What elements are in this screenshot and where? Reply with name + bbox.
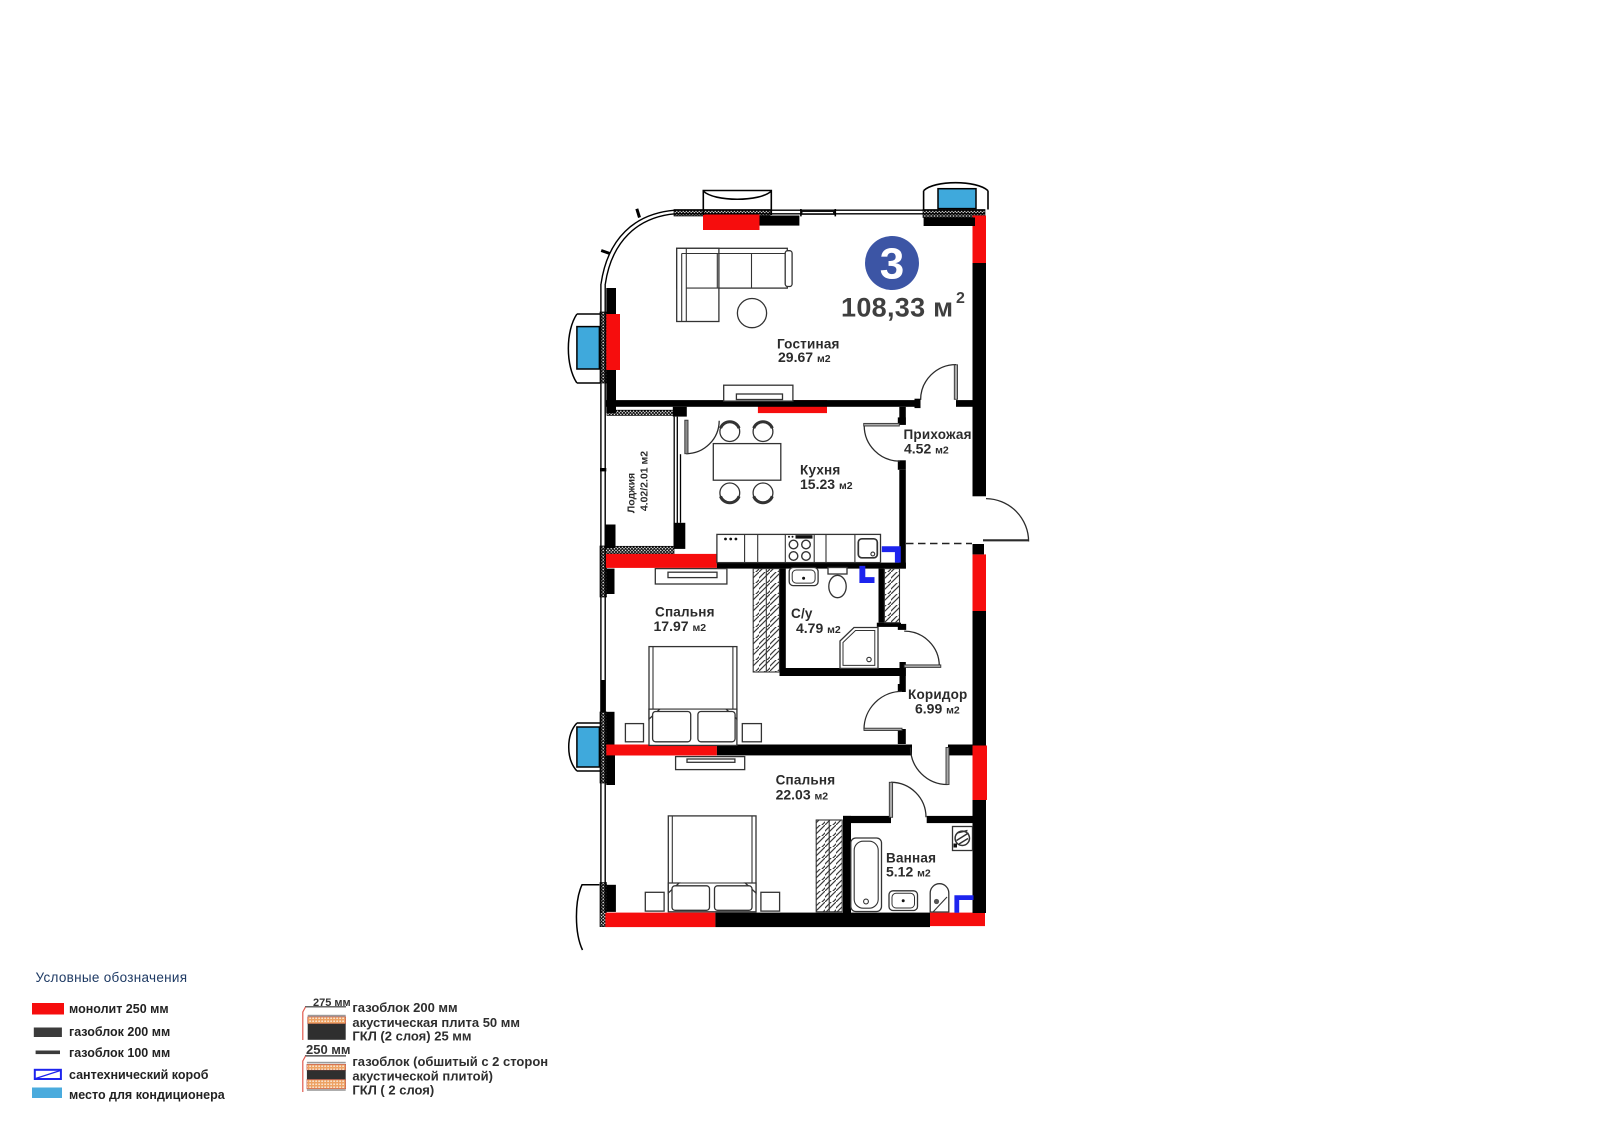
svg-text:газоблок 200 мм: газоблок 200 мм [69,1025,170,1039]
svg-text:монолит 250 мм: монолит 250 мм [69,1002,169,1016]
svg-text:ГКЛ ( 2 слоя): ГКЛ ( 2 слоя) [352,1083,434,1098]
svg-text:250 мм: 250 мм [306,1042,351,1057]
svg-text:ГКЛ (2 слоя) 25 мм: ГКЛ (2 слоя) 25 мм [352,1029,471,1044]
svg-text:3: 3 [880,240,904,289]
svg-text:2: 2 [956,290,965,307]
svg-text:4.02/2.01 м2: 4.02/2.01 м2 [639,451,651,511]
svg-text:Условные обозначения: Условные обозначения [36,970,188,985]
svg-text:сантехнический короб: сантехнический короб [69,1068,209,1082]
svg-text:Лоджия: Лоджия [626,473,638,513]
svg-text:Спальня: Спальня [776,773,836,788]
svg-text:108,33 м: 108,33 м [841,293,953,323]
svg-text:газоблок 200 мм: газоблок 200 мм [352,1000,457,1015]
svg-text:газоблок (обшитый с 2 сторон: газоблок (обшитый с 2 сторон [352,1054,548,1069]
svg-text:место для кондиционера: место для кондиционера [69,1088,226,1102]
svg-text:акустической плитой): акустической плитой) [352,1069,493,1084]
svg-text:С/у: С/у [791,606,813,621]
svg-text:газоблок 100 мм: газоблок 100 мм [69,1046,170,1060]
